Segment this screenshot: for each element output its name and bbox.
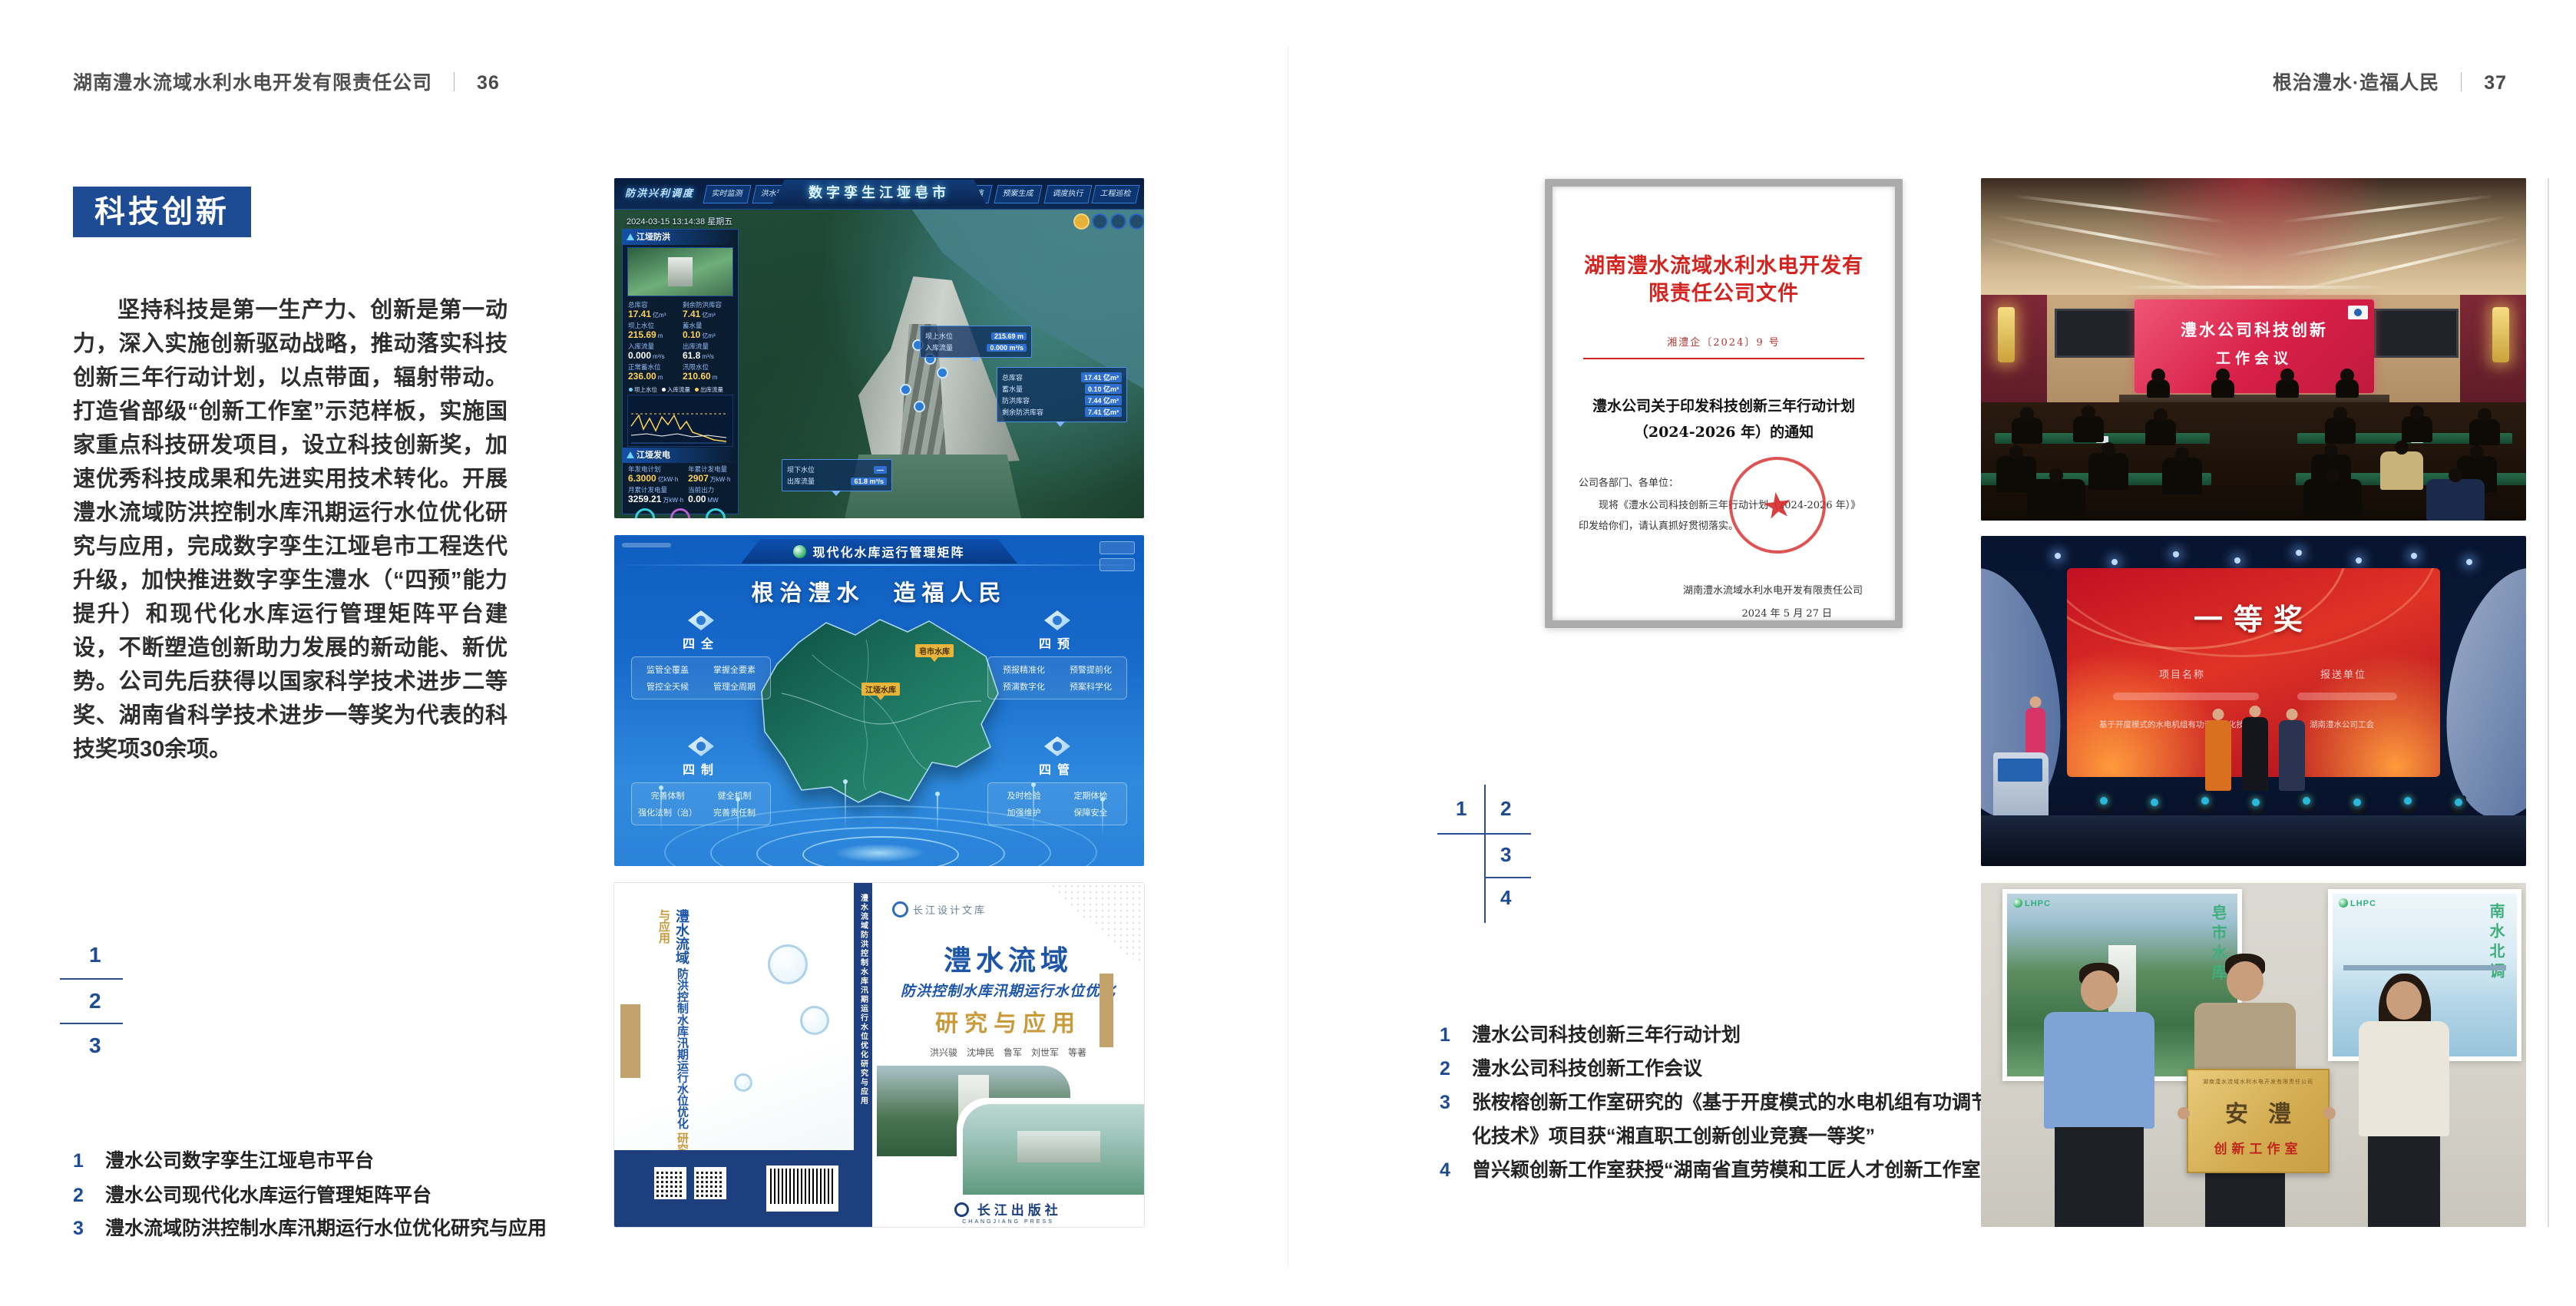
caption-text: 澧水流域防洪控制水库汛期运行水位优化研究与应用 [105, 1218, 547, 1239]
wall-tv-screen [2374, 309, 2459, 358]
figure-index-2: 2 [1500, 797, 1511, 821]
lhpc-logo: LHPC [2339, 898, 2376, 908]
document-number: 湘澧企〔2024〕9 号 [1579, 334, 1869, 349]
page-gutter [1288, 46, 1288, 1267]
hand [2178, 1107, 2190, 1119]
panel-siguan: 四管 及时检验定期体检 加强维护保障安全 [987, 736, 1127, 825]
award-col-unit: 报送单位 [2320, 666, 2366, 681]
plaque-sub-text: 创新工作室 [2188, 1138, 2328, 1157]
figure-index-4: 4 [1500, 886, 1511, 910]
settings-icon [1129, 213, 1144, 230]
caption-number: 2 [73, 1179, 84, 1212]
layers-icon [1092, 213, 1108, 230]
flood-panel-title: 江垭防洪 [623, 230, 738, 245]
right-caption-1: 1澧水公司科技创新三年行动计划 [1440, 1018, 2009, 1052]
header-separator: ｜ [445, 72, 465, 94]
poster-right-calligraphy: 南水北调 [2485, 903, 2508, 983]
callout-upstream: 坝上水位215.69 m 入库流量0.000 m³/s [920, 326, 1032, 358]
basin-terrain-map [751, 609, 1009, 815]
document-red-header: 湖南澧水流域水利水电开发有限责任公司文件 [1579, 253, 1869, 308]
water-level-chart [627, 395, 733, 447]
figure-index-3: 3 [89, 1033, 101, 1058]
left-caption-1: 1澧水公司数字孪生江垭皂市平台 [73, 1144, 574, 1178]
document-title: 澧水公司关于印发科技创新三年行动计划 （2024-2026 年）的通知 [1579, 393, 1869, 445]
tab-realtime-monitor: 实时监测 [703, 185, 751, 203]
chart-legend: 坝上水位 入库流量 出库流量 [623, 384, 738, 394]
wall-lamp [2492, 307, 2509, 362]
map-tag-zaoshi: 皂市水库 [915, 644, 954, 657]
drop-icon [688, 610, 714, 630]
book-title-tail: 研究与应用 [872, 1004, 1144, 1038]
book-authors: 洪兴骏 沈坤民 鲁军 刘世军 等著 [872, 1046, 1144, 1059]
index-divider [1437, 833, 1531, 835]
right-caption-3: 3张桉榕创新工作室研究的《基于开度模式的水电机组有功调节优化技术》项目获“湘直职… [1440, 1086, 2009, 1153]
locate-icon [1110, 213, 1126, 230]
caption-number: 3 [73, 1212, 84, 1245]
figure-official-document: 湖南澧水流域水利水电开发有限责任公司文件 湘澧企〔2024〕9 号 澧水公司关于… [1545, 179, 1903, 628]
stage-floor [1981, 815, 2526, 866]
stage-side-panel [2429, 557, 2526, 830]
book-front-cover: 长江设计文库 澧水流域 防洪控制水库汛期运行水位优化 研究与应用 洪兴骏 沈坤民… [872, 883, 1144, 1227]
callout-downstream: 坝下水位— 出库流量61.8 m³/s [782, 459, 892, 491]
plaque-company-line: 湖南澧水流域水利水电开发有限责任公司 [2188, 1078, 2328, 1086]
caption-text: 澧水公司现代化水库运行管理矩阵平台 [105, 1185, 432, 1206]
dashboard-datetime: 2024-03-15 13:14:38 星期五 [627, 215, 732, 227]
bubble-decoration [768, 944, 808, 984]
building-icon [688, 736, 714, 756]
barcode [766, 1165, 838, 1212]
spine-title: 澧水流域防洪控制水库汛期运行水位优化研究与应用 [858, 894, 869, 1216]
bubble-decoration [800, 1006, 829, 1035]
callout-storage: 总库容17.41 亿m³ 蓄水量0.10 亿m³ 防洪库容7.44 亿m³ 剩余… [997, 367, 1127, 422]
magazine-spread: 湖南澧水流域水利水电开发有限责任公司｜36 根治澧水·造福人民｜37 科技创新 … [0, 0, 2576, 1306]
left-caption-2: 2澧水公司现代化水库运行管理矩阵平台 [73, 1179, 574, 1212]
header-separator: ｜ [2452, 72, 2472, 94]
award-row-unit: 湖南澧水公司工会 [2310, 719, 2374, 730]
tab-plan-generation: 预案生成 [994, 185, 1042, 203]
lhpc-logo-icon [793, 545, 806, 558]
dam-video-thumbnail [627, 247, 733, 296]
right-caption-4: 4曾兴颖创新工作室获授“湖南省直劳模和工匠人才创新工作室” [1440, 1153, 2009, 1187]
plaque-main-text: 安澧 [2188, 1095, 2328, 1129]
series-row: 长江设计文库 [892, 901, 987, 918]
blurred-row [2113, 693, 2259, 700]
tab-dispatch-execute: 调度执行 [1043, 185, 1092, 203]
innovation-workshop-plaque: 湖南澧水流域水利水电开发有限责任公司 安澧 创新工作室 [2187, 1069, 2330, 1173]
document-salutation: 公司各部门、各单位： [1579, 474, 1869, 489]
turbine-gauges: 1#机组 2#机组 3#机组 [623, 507, 738, 518]
qr-code [694, 1167, 726, 1199]
right-page-number: 37 [2484, 72, 2507, 94]
figure-index-3: 3 [1500, 843, 1511, 867]
audience-area [1981, 402, 2526, 521]
caption-text: 澧水公司数字孪生江垭皂市平台 [105, 1150, 374, 1172]
figure-index-1: 1 [1456, 797, 1467, 821]
photo-award-ceremony: 一等奖 项目名称 报送单位 基于开度模式的水电机组有功调节优化技术 湖南澧水公司… [1981, 536, 2526, 866]
screen-logo [2348, 306, 2368, 319]
panel-sizhi: 四制 完善体制健全机制 强化法制（治）完善责任制 [631, 736, 771, 825]
dashboard-mode-label: 防洪兴利调度 [625, 185, 694, 200]
meeting-ceiling [1981, 178, 2526, 295]
back-vertical-title: 澧水流域 防洪控制水库汛期运行水位优化 研究与应用 [656, 909, 692, 1162]
screen-title-line1: 澧水公司科技创新 [2135, 318, 2374, 341]
book-back-cover: 澧水流域 防洪控制水库汛期运行水位优化 研究与应用 [614, 883, 854, 1227]
map-tag-jiangya: 江垭水库 [861, 683, 900, 696]
panel-siquan: 四全 监管全覆盖掌握全要素 管控全天候管理全周期 [631, 610, 771, 699]
photo-workshop-plaque: LHPC 皂市水库 LHPC 南水北调 [1981, 883, 2526, 1227]
left-page-header: 湖南澧水流域水利水电开发有限责任公司｜36 [73, 68, 500, 95]
tab-project-inspection: 工程巡检 [1091, 185, 1139, 203]
meeting-projection-screen: 澧水公司科技创新 工作会议 [2135, 299, 2374, 393]
figure-digital-twin-dashboard: 防洪兴利调度 实时监测 洪水预报 防洪预警 防洪预演 预案生成 调度执行 工程巡… [614, 178, 1144, 518]
award-col-project: 项目名称 [2159, 666, 2205, 681]
company-name: 湖南澧水流域水利水电开发有限责任公司 [73, 72, 432, 94]
book-spine: 澧水流域防洪控制水库汛期运行水位优化研究与应用 [854, 883, 872, 1227]
back-accent-block [620, 1004, 640, 1078]
section-title: 科技创新 [73, 187, 251, 237]
panel-siyu: 四预 预报精准化预警提前化 预演数字化预案科学化 [987, 610, 1127, 699]
matrix-toolbar-button [1100, 558, 1135, 571]
left-page-number: 36 [477, 72, 500, 94]
document-page: 湖南澧水流域水利水电开发有限责任公司文件 湘澧企〔2024〕9 号 澧水公司关于… [1553, 187, 1895, 620]
header-glow-line [614, 564, 1144, 566]
publisher-logo-icon [954, 1202, 969, 1217]
matrix-toolbar-button [1100, 541, 1135, 554]
matrix-header-bar: 现代化水库运行管理矩阵 [741, 539, 1017, 564]
flood-metrics: 总库容17.41亿m³ 剩余防洪库容7.41亿m³ 坝上水位215.69m 蓄水… [623, 299, 738, 384]
figure-book-cover: 澧水流域 防洪控制水库汛期运行水位优化 研究与应用 澧水流域防洪控制水库汛期运行… [614, 883, 1144, 1227]
slogan-text: 根治澧水·造福人民 [2273, 72, 2439, 94]
bubble-decoration [734, 1073, 752, 1092]
index-divider [1484, 877, 1531, 878]
index-divider [60, 1023, 123, 1024]
caption-number: 1 [73, 1144, 84, 1178]
shield-icon [1044, 736, 1070, 756]
publisher-name: 长江出版社 [977, 1203, 1062, 1218]
publisher-row: 长江出版社 CHANGJIANG PRESS [872, 1199, 1144, 1225]
right-page-header: 根治澧水·造福人民｜37 [2273, 68, 2507, 95]
left-caption-3: 3澧水流域防洪控制水库汛期运行水位优化研究与应用 [73, 1212, 597, 1245]
index-vertical-line [1484, 785, 1486, 923]
page-edge-line [2548, 178, 2549, 1227]
figure-management-matrix: 现代化水库运行管理矩阵 根治澧水 造福人民 皂市水库 江垭水库 四全 监管全覆盖… [614, 535, 1144, 866]
screen-title-line2: 工作会议 [2135, 347, 2374, 368]
dashboard-title: 数字孪生江垭皂市 [772, 180, 987, 206]
power-metrics: 年发电计划6.3000亿kW·h 年累计发电量2907万kW·h 月累计发电量3… [623, 463, 738, 507]
wall-tv-screen [2055, 309, 2139, 358]
company-seal: ★ [1723, 451, 1832, 560]
right-caption-2: 2澧水公司科技创新工作会议 [1440, 1052, 2009, 1086]
book-title-main: 澧水流域 [872, 938, 1144, 978]
power-panel-title: 江垭发电 [623, 448, 738, 463]
series-label: 长江设计文库 [913, 902, 987, 917]
matrix-datetime-placeholder [622, 543, 671, 547]
publisher-name-en: CHANGJIANG PRESS [872, 1219, 1144, 1225]
lhpc-logo: LHPC [2013, 898, 2051, 908]
matrix-title: 现代化水库运行管理矩阵 [812, 542, 964, 560]
figure-index-2: 2 [89, 989, 101, 1013]
blurred-row [2297, 693, 2397, 700]
left-data-panel: 江垭防洪 总库容17.41亿m³ 剩余防洪库容7.41亿m³ 坝上水位215.6… [622, 229, 739, 514]
user-icon [1073, 213, 1090, 230]
index-divider [60, 978, 123, 980]
matrix-slogan: 根治澧水 造福人民 [614, 575, 1144, 607]
figure-index-1: 1 [89, 943, 101, 967]
document-signature: 湖南澧水流域水利水电开发有限责任公司 2024 年 5 月 27 日 [1579, 580, 1869, 626]
wall-lamp [1998, 307, 2015, 362]
qr-code [654, 1167, 686, 1199]
back-bottom-band [614, 1150, 872, 1227]
changjiang-design-logo-icon [892, 901, 908, 918]
dam-panorama-photo [963, 1104, 1144, 1195]
body-paragraph: 坚持科技是第一生产力、创新是第一动力，深入实施创新驱动战略，推动落实科技创新三年… [73, 293, 508, 766]
monitor-icon [1044, 610, 1070, 630]
photo-innovation-meeting: 澧水公司科技创新 工作会议 [1981, 178, 2526, 521]
hand [2323, 1107, 2336, 1119]
document-red-rule [1583, 358, 1864, 359]
